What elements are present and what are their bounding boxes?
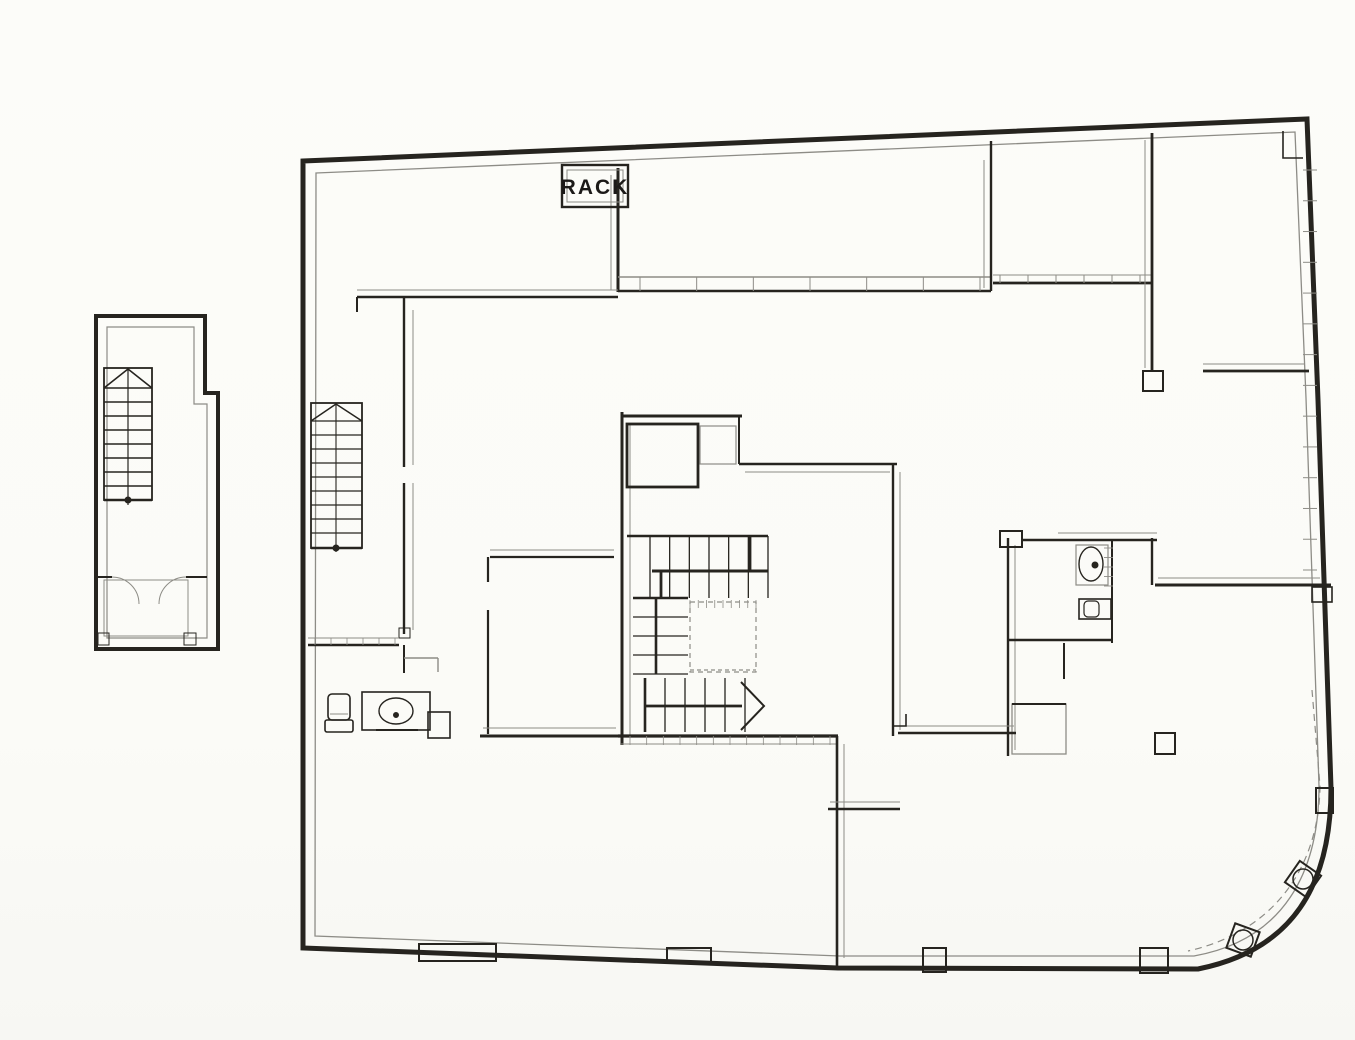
closet xyxy=(1012,704,1066,754)
left-wing xyxy=(308,290,618,673)
left-run-treads xyxy=(633,598,688,674)
wall-jog xyxy=(1283,131,1303,158)
restroom-left xyxy=(325,692,450,738)
shaft-room xyxy=(627,424,698,487)
floorplan-scan: RACK xyxy=(0,0,1355,1040)
landing-hatch xyxy=(690,600,756,608)
wall-pier xyxy=(1143,371,1163,391)
wall-pier xyxy=(1000,531,1022,547)
landing-dashed xyxy=(690,602,756,672)
sink-basin xyxy=(379,698,413,724)
center-room xyxy=(480,550,620,736)
annex-door-arc xyxy=(112,577,139,604)
annex-door-jamb xyxy=(184,633,196,645)
sink-drain xyxy=(1092,562,1098,568)
main-outer-wall xyxy=(303,119,1331,969)
main-building-outline xyxy=(303,119,1331,969)
shaft-room-2 xyxy=(700,426,736,464)
round-column xyxy=(1293,869,1313,889)
structural-columns xyxy=(1226,861,1321,957)
annex-vestibule xyxy=(104,580,188,636)
annex-outer-wall xyxy=(96,316,218,649)
central-stairwell xyxy=(618,412,900,745)
annex-door-arc xyxy=(159,577,186,604)
toilet-bowl xyxy=(1084,601,1099,617)
window-mullions xyxy=(640,277,980,291)
square-column xyxy=(1155,733,1175,754)
interior-walls-top xyxy=(611,131,1317,570)
sink-drain xyxy=(394,713,399,718)
sink-basin xyxy=(1079,547,1103,581)
annex-building xyxy=(96,316,218,649)
main-inner-wall xyxy=(315,132,1319,956)
rack-label-text: RACK xyxy=(561,176,630,199)
right-rooms xyxy=(893,531,1332,756)
floorplan-svg: RACK xyxy=(0,0,1355,1040)
vanity-return xyxy=(428,712,450,738)
toilet-base xyxy=(325,720,353,732)
lower-rooms xyxy=(419,736,1333,973)
toilet-tank xyxy=(328,694,350,720)
